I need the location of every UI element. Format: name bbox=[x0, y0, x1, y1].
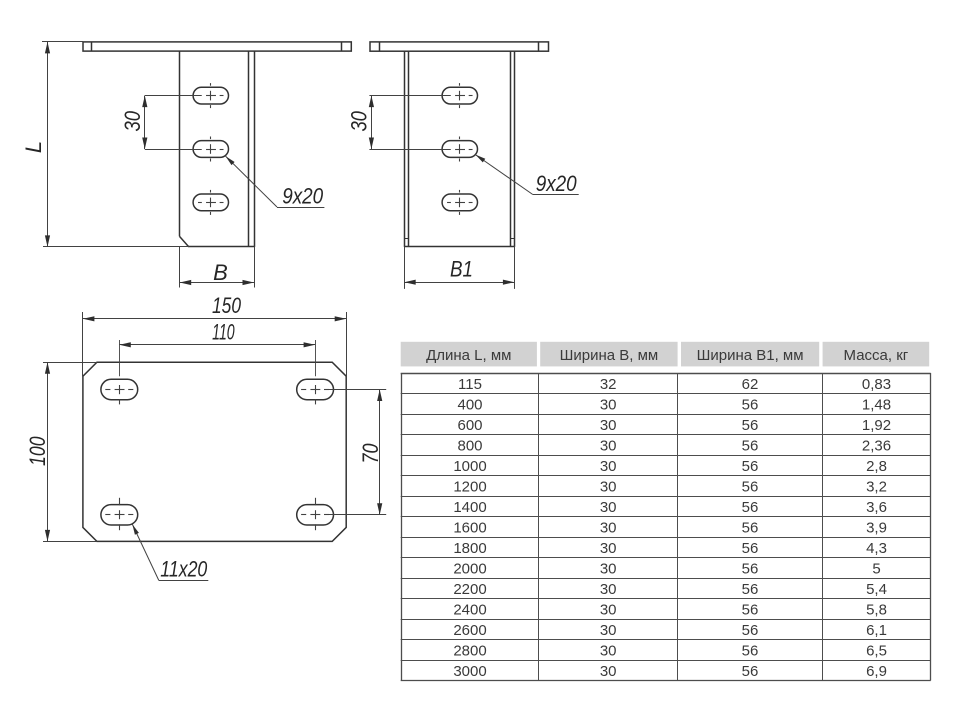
svg-text:30: 30 bbox=[600, 622, 617, 639]
svg-text:4,3: 4,3 bbox=[866, 540, 887, 557]
svg-text:Ширина B1, мм: Ширина B1, мм bbox=[697, 347, 804, 364]
svg-text:56: 56 bbox=[742, 417, 759, 434]
svg-text:3,6: 3,6 bbox=[866, 499, 887, 516]
svg-text:5,4: 5,4 bbox=[866, 581, 887, 598]
svg-text:1,48: 1,48 bbox=[862, 396, 891, 413]
svg-text:1,92: 1,92 bbox=[862, 417, 891, 434]
svg-text:3,2: 3,2 bbox=[866, 478, 887, 495]
svg-text:1200: 1200 bbox=[453, 478, 486, 495]
svg-text:30: 30 bbox=[600, 458, 617, 475]
svg-text:B: B bbox=[213, 260, 228, 285]
svg-text:6,1: 6,1 bbox=[866, 622, 887, 639]
svg-text:2800: 2800 bbox=[453, 642, 486, 659]
svg-text:30: 30 bbox=[600, 519, 617, 536]
svg-text:1400: 1400 bbox=[453, 499, 486, 516]
svg-text:5,8: 5,8 bbox=[866, 601, 887, 618]
svg-text:30: 30 bbox=[346, 110, 371, 131]
svg-text:30: 30 bbox=[600, 478, 617, 495]
svg-text:2200: 2200 bbox=[453, 581, 486, 598]
svg-text:2400: 2400 bbox=[453, 601, 486, 618]
svg-text:56: 56 bbox=[742, 437, 759, 454]
svg-text:30: 30 bbox=[120, 110, 145, 131]
svg-text:800: 800 bbox=[457, 437, 482, 454]
svg-text:56: 56 bbox=[742, 458, 759, 475]
svg-text:70: 70 bbox=[358, 443, 383, 464]
svg-text:62: 62 bbox=[742, 376, 759, 393]
svg-text:1000: 1000 bbox=[453, 458, 486, 475]
svg-text:2,8: 2,8 bbox=[866, 458, 887, 475]
svg-text:56: 56 bbox=[742, 396, 759, 413]
svg-text:1800: 1800 bbox=[453, 540, 486, 557]
svg-text:30: 30 bbox=[600, 601, 617, 618]
svg-text:30: 30 bbox=[600, 499, 617, 516]
svg-text:56: 56 bbox=[742, 663, 759, 680]
svg-text:30: 30 bbox=[600, 560, 617, 577]
svg-text:30: 30 bbox=[600, 540, 617, 557]
svg-text:600: 600 bbox=[457, 417, 482, 434]
svg-text:32: 32 bbox=[600, 376, 617, 393]
svg-text:30: 30 bbox=[600, 417, 617, 434]
svg-text:Длина L, мм: Длина L, мм bbox=[426, 347, 511, 364]
svg-text:0,83: 0,83 bbox=[862, 376, 891, 393]
svg-text:30: 30 bbox=[600, 581, 617, 598]
svg-text:56: 56 bbox=[742, 478, 759, 495]
svg-text:Масса, кг: Масса, кг bbox=[844, 347, 909, 364]
svg-text:6,9: 6,9 bbox=[866, 663, 887, 680]
svg-text:2,36: 2,36 bbox=[862, 437, 891, 454]
svg-text:11x20: 11x20 bbox=[160, 557, 208, 582]
svg-text:56: 56 bbox=[742, 622, 759, 639]
svg-text:L: L bbox=[21, 141, 46, 153]
svg-text:3000: 3000 bbox=[453, 663, 486, 680]
svg-text:Ширина B, мм: Ширина B, мм bbox=[560, 347, 659, 364]
svg-text:56: 56 bbox=[742, 642, 759, 659]
svg-text:30: 30 bbox=[600, 437, 617, 454]
svg-text:56: 56 bbox=[742, 519, 759, 536]
svg-text:56: 56 bbox=[742, 499, 759, 516]
svg-text:5: 5 bbox=[872, 560, 880, 577]
svg-text:2600: 2600 bbox=[453, 622, 486, 639]
svg-text:56: 56 bbox=[742, 601, 759, 618]
svg-text:30: 30 bbox=[600, 663, 617, 680]
svg-text:B1: B1 bbox=[450, 257, 473, 282]
svg-text:100: 100 bbox=[25, 436, 50, 466]
svg-text:56: 56 bbox=[742, 581, 759, 598]
svg-text:115: 115 bbox=[458, 376, 482, 393]
svg-text:400: 400 bbox=[457, 396, 482, 413]
svg-text:150: 150 bbox=[212, 293, 242, 318]
svg-text:56: 56 bbox=[742, 540, 759, 557]
svg-text:56: 56 bbox=[742, 560, 759, 577]
svg-text:9x20: 9x20 bbox=[536, 171, 578, 196]
svg-text:9x20: 9x20 bbox=[282, 183, 324, 208]
svg-text:30: 30 bbox=[600, 642, 617, 659]
svg-text:2000: 2000 bbox=[453, 560, 486, 577]
svg-text:3,9: 3,9 bbox=[866, 519, 887, 536]
svg-text:30: 30 bbox=[600, 396, 617, 413]
svg-text:1600: 1600 bbox=[453, 519, 486, 536]
svg-text:6,5: 6,5 bbox=[866, 642, 887, 659]
svg-text:110: 110 bbox=[212, 320, 235, 345]
